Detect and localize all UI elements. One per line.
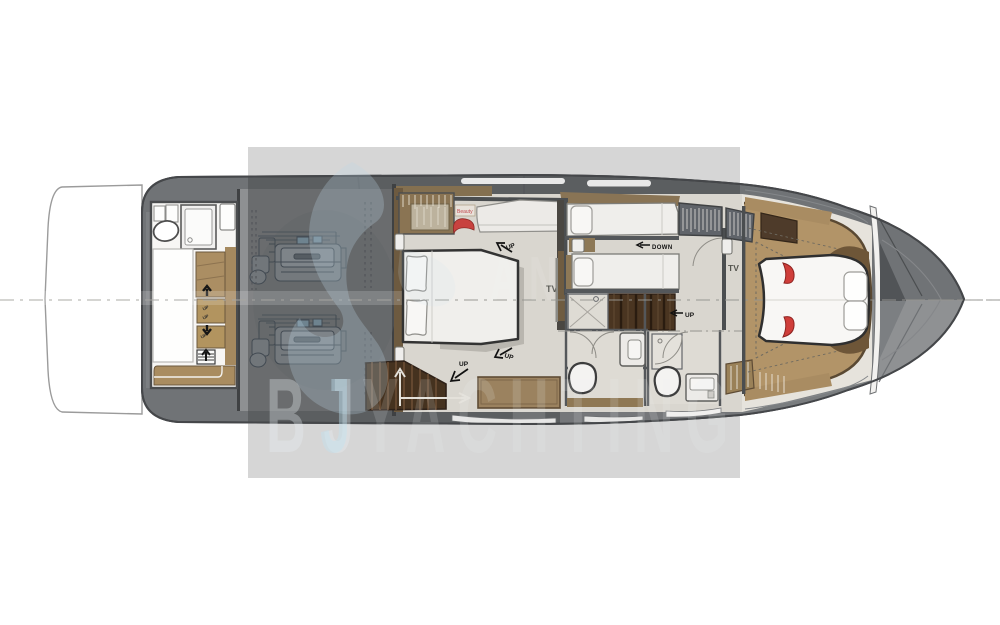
svg-text:YACHTING: YACHTING [362,357,740,475]
svg-text:J: J [320,357,351,475]
svg-text:Beauty: Beauty [457,209,473,215]
svg-text:UP: UP [685,312,695,319]
svg-text:AN: AN [490,244,568,314]
svg-text:BJ: BJ [266,357,372,475]
svg-text:TV: TV [728,263,739,273]
svg-text:DOWN: DOWN [652,245,673,251]
